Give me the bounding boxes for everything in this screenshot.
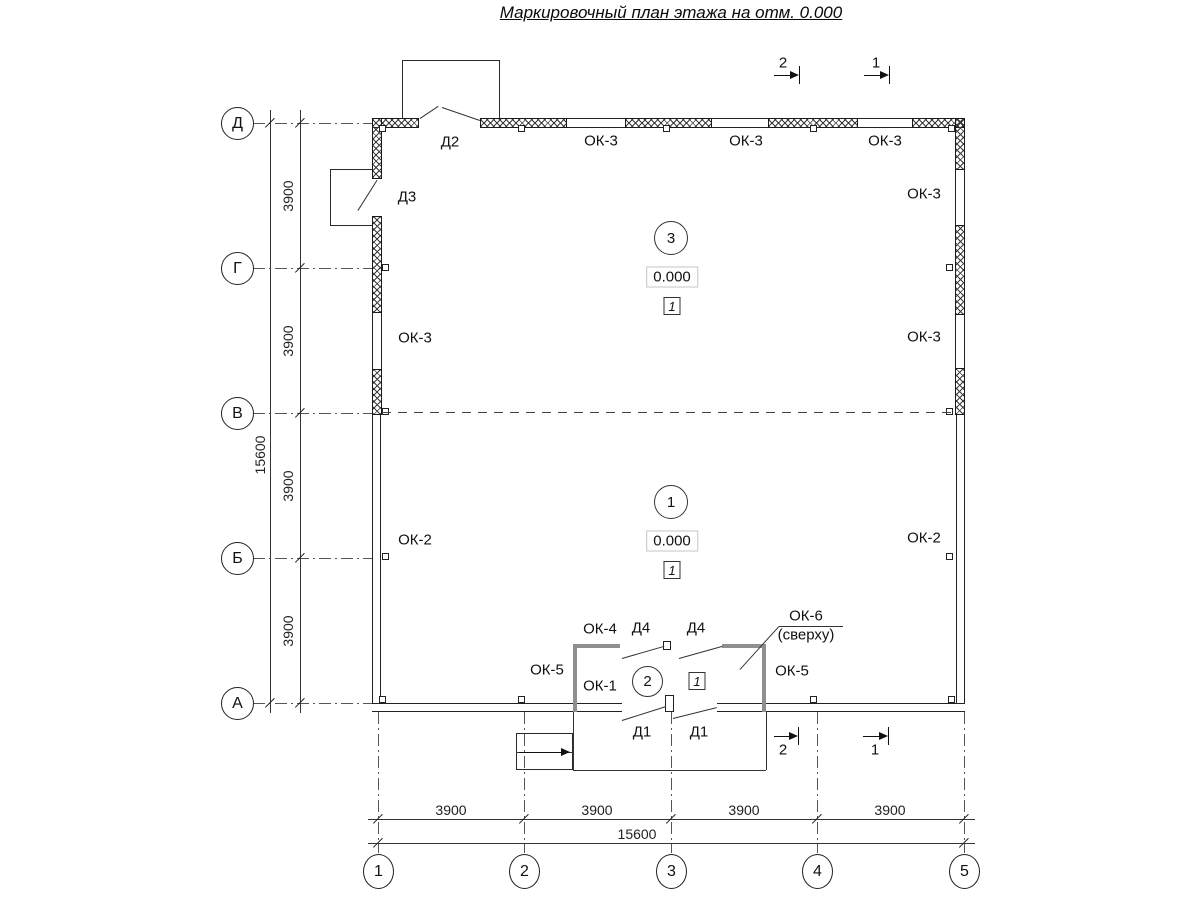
section-mark-2-arrow-head (790, 71, 799, 79)
axis-line-5 (964, 712, 965, 853)
dim-total-label: 15600 (618, 826, 657, 842)
axis-letter: Г (233, 260, 242, 278)
window-label-ok2: ОК-2 (907, 530, 941, 547)
door-label-d4: Д4 (632, 620, 651, 637)
wall-bottom-right (717, 703, 965, 712)
pilaster (946, 264, 953, 271)
section-mark-1-tick (889, 66, 890, 84)
pilaster (948, 696, 955, 703)
door-d4-leaf-left (622, 646, 664, 659)
dim-line-total-horizontal (368, 843, 975, 844)
pilaster (379, 696, 386, 703)
window-label-ok6-note: (сверху) (778, 627, 835, 644)
room-1-floor-type: 1 (664, 561, 681, 579)
pilaster (810, 696, 817, 703)
window-ok3-right-1 (955, 170, 965, 225)
dim-bay-label: 3900 (874, 802, 905, 818)
room-number: 3 (667, 230, 675, 247)
window-label-ok3: ОК-3 (729, 133, 763, 150)
window-label-ok2: ОК-2 (398, 532, 432, 549)
section-mark-2-label: 2 (779, 55, 787, 72)
room-2-bubble: 2 (632, 666, 663, 697)
pilaster (663, 125, 670, 132)
window-label-ok3: ОК-3 (398, 330, 432, 347)
room-number: 1 (667, 494, 675, 511)
window-ok3-top-3 (858, 118, 912, 128)
dim-bay-label: 3900 (280, 615, 296, 646)
window-label-ok3: ОК-3 (907, 329, 941, 346)
dim-bay-label: 3900 (581, 802, 612, 818)
partition-right (762, 644, 766, 712)
room-3-elevation: 0.000 (646, 267, 698, 288)
section-mark-1-label: 1 (872, 55, 880, 72)
axis-line-4 (817, 712, 818, 853)
door-d4-leaf-right (679, 646, 722, 659)
wall-bottom-left (372, 703, 622, 712)
partition-left (573, 644, 577, 712)
section-mark-2-arrow-head (789, 732, 798, 740)
door-label-d4: Д4 (687, 620, 706, 637)
wall-left-2 (372, 216, 382, 313)
axis-bubble-А: А (221, 687, 254, 720)
drawing-title: Маркировочный план этажа на отм. 0.000 (500, 3, 842, 23)
steps-direction-arrow (519, 752, 563, 753)
wall-right-3 (955, 368, 965, 415)
room-3-bubble: 3 (654, 221, 688, 255)
ok6-leader-line (740, 626, 780, 670)
dim-line-total-vertical (270, 110, 271, 713)
door-d1-leaf-right (673, 707, 717, 719)
axis-bubble-Г: Г (221, 252, 254, 285)
axis-bubble-2: 2 (509, 854, 540, 889)
section-mark-2-label: 2 (779, 742, 787, 759)
window-ok3-top-2 (712, 118, 768, 128)
steps-arrow-head (561, 748, 570, 756)
dim-bay-label: 3900 (435, 802, 466, 818)
pilaster (810, 125, 817, 132)
door-label-d3: Д3 (398, 189, 417, 206)
window-label-ok1: ОК-1 (583, 678, 617, 695)
axis-line-1 (378, 712, 379, 853)
wall-left-3 (372, 369, 382, 415)
axis-letter: В (232, 405, 243, 423)
pilaster (379, 125, 386, 132)
section-mark-2-tick (798, 727, 799, 745)
window-label-ok3: ОК-3 (907, 186, 941, 203)
axis-bubble-Б: Б (221, 542, 254, 575)
room-2-floor-type: 1 (689, 672, 706, 690)
door-label-d1: Д1 (633, 724, 652, 741)
axis-number: 2 (520, 863, 529, 881)
section-mark-1-arrow-head (879, 732, 888, 740)
door-d4-post (663, 641, 671, 650)
glazed-wall-left-ok2 (372, 415, 381, 703)
wall-right-1 (955, 118, 965, 170)
axis-letter: Д (232, 115, 243, 133)
dim-bay-label: 3900 (280, 470, 296, 501)
window-ok3-right-2 (955, 315, 965, 368)
floor-plan-drawing: Маркировочный план этажа на отм. 0.000 (0, 0, 1200, 900)
axis-bubble-В: В (221, 397, 254, 430)
pilaster (382, 553, 389, 560)
room-1-elevation: 0.000 (646, 531, 698, 552)
window-ok3-left-1 (372, 313, 382, 369)
pilaster (382, 264, 389, 271)
partition-top-left (573, 644, 620, 648)
door-d1-post (665, 695, 674, 712)
window-label-ok5: ОК-5 (775, 663, 809, 680)
axis-bubble-4: 4 (802, 854, 833, 889)
section-mark-1-tick (888, 727, 889, 745)
porch-bottom-edge (573, 770, 766, 771)
axis-line-В-interior (382, 412, 955, 413)
axis-letter: Б (232, 550, 243, 568)
porch-left-edge (573, 712, 574, 770)
room-number: 2 (643, 673, 651, 690)
window-label-ok4: ОК-4 (583, 621, 617, 638)
axis-number: 5 (960, 863, 969, 881)
pilaster (946, 553, 953, 560)
wall-right-2 (955, 225, 965, 315)
dim-total-label: 15600 (252, 436, 268, 475)
axis-bubble-5: 5 (949, 854, 980, 889)
axis-bubble-Д: Д (221, 107, 254, 140)
axis-bubble-1: 1 (363, 854, 394, 889)
window-label-ok6: ОК-6 (789, 608, 823, 625)
axis-number: 1 (374, 863, 383, 881)
pilaster (518, 125, 525, 132)
axis-bubble-3: 3 (656, 854, 687, 889)
glazed-wall-right-ok2 (956, 415, 965, 703)
section-mark-1-arrow-head (880, 71, 889, 79)
dim-bay-label: 3900 (280, 325, 296, 356)
window-label-ok3: ОК-3 (868, 133, 902, 150)
axis-number: 3 (667, 863, 676, 881)
axis-number: 4 (813, 863, 822, 881)
window-label-ok3: ОК-3 (584, 133, 618, 150)
dim-bay-label: 3900 (280, 180, 296, 211)
door-label-d1: Д1 (690, 724, 709, 741)
axis-line-3 (671, 712, 672, 853)
porch-right-edge (766, 712, 767, 770)
pilaster (948, 125, 955, 132)
axis-line-2 (524, 712, 525, 853)
window-label-ok5: ОК-5 (530, 662, 564, 679)
section-mark-2-tick (799, 66, 800, 84)
pilaster (518, 696, 525, 703)
axis-letter: А (232, 695, 243, 713)
room-1-bubble: 1 (654, 485, 688, 519)
dim-bay-label: 3900 (728, 802, 759, 818)
section-mark-1-label: 1 (871, 742, 879, 759)
door-d1-leaf-left (622, 706, 666, 721)
window-ok3-top-1 (567, 118, 625, 128)
room-3-floor-type: 1 (664, 297, 681, 315)
door-label-d2: Д2 (441, 134, 460, 151)
